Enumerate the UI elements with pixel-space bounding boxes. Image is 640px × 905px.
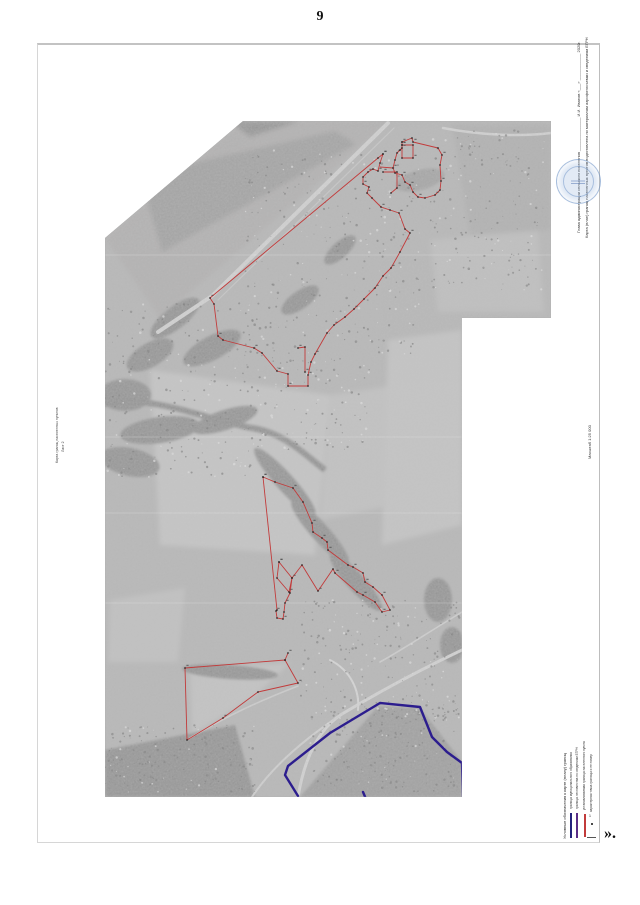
legend-entry-forestry-boundary: граница лесничества по сведениям ЕГРН — [576, 747, 580, 809]
scale-note: Масштаб 1:25 000 — [588, 425, 593, 459]
closing-quote-mark: ». — [604, 825, 616, 843]
legend-entry-settlement-boundary: устанавливаемая граница населенного пунк… — [583, 741, 587, 810]
legend-entry-municipal-boundary: граница муниципального образования — [570, 752, 574, 809]
legend-swatch-navy-line — [570, 813, 572, 838]
legend-swatch-red-line — [584, 814, 586, 837]
aerial-photo-map — [100, 115, 555, 800]
legend-title: Условные обозначения к карте (плану) гра… — [563, 753, 568, 839]
legend-point-symbol-dot — [591, 823, 593, 825]
round-seal-stamp — [556, 159, 601, 204]
legend-entry-boundary-point: характерная точка границы и ее номер — [590, 754, 594, 812]
legend-swatch-purple-line — [576, 813, 578, 838]
photo-grain — [100, 115, 555, 800]
approval-line-2: Карта (план) границ населенных пунктов п… — [585, 37, 590, 238]
approval-line-1: Глава администрации сельского поселения … — [577, 42, 582, 234]
legend-point-symbol-tick — [587, 837, 596, 838]
document-page: 9 — [0, 0, 640, 905]
left-margin-note: Карта границ населенных пунктов — [55, 408, 59, 463]
left-margin-sheet-number: Лист 2 — [61, 441, 65, 452]
page-number: 9 — [0, 9, 640, 25]
legend-point-symbol-number: 1 — [589, 814, 591, 818]
